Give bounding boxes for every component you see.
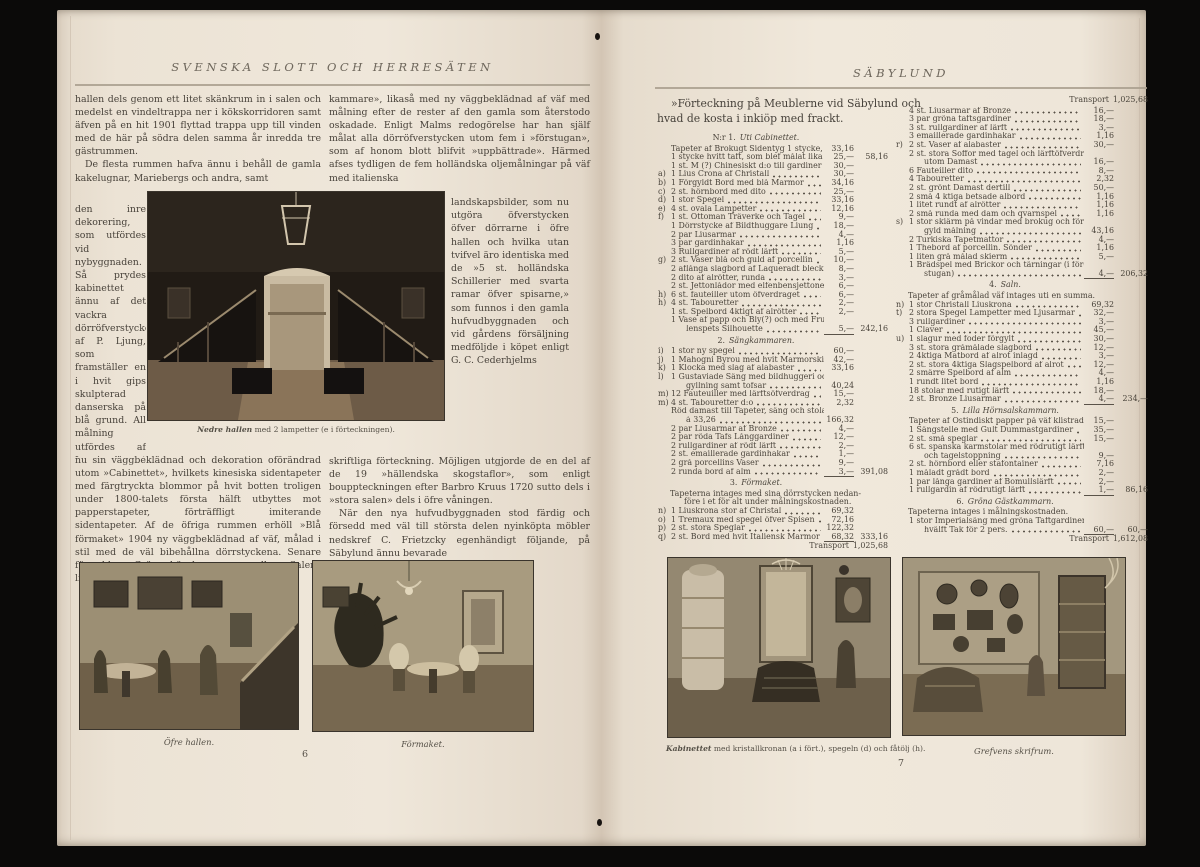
photo-formaket — [313, 561, 533, 731]
inventory-section-header: 3. Förmaket. — [658, 479, 888, 488]
inventory-row: 2 små runda med dam och qvarnspel1,16 — [896, 210, 1148, 219]
inventory-row: 2 runda bord af alm3,—391,08 — [658, 468, 888, 477]
paragraph: skriftliga förteckning. Möjligen utgjord… — [329, 455, 590, 507]
binding-stitch-bottom — [597, 819, 602, 826]
inventory-row: 2 st. Bronze Liusarmar4,—234,— — [896, 395, 1148, 404]
inventory-row: 1 st. Spelbord 4ktigt af alrötter2,— — [658, 308, 888, 317]
inventory-row: m)4 st. Tabouretter d:o2,32 — [658, 399, 888, 408]
running-head-right: SÄBYLUND — [655, 66, 1147, 80]
header-rule-right — [655, 87, 1147, 89]
inventory-section-header: 5. Lilla Hörnsalskammarn. — [896, 407, 1148, 416]
inventory-row: lenspets Silhouette5,—242,16 — [658, 325, 888, 334]
inventory-row: 2 st. små speglar15,— — [896, 435, 1148, 444]
inventory-row: hvälft Tak för 2 pers.60,—60,— — [896, 526, 1148, 535]
photo-nedre-hallen-caption: Nedre hallen med 2 lampetter (e i förtec… — [148, 425, 444, 434]
inventory-section-header: 2. Sängkammaren. — [658, 337, 888, 346]
inventory-column-2: Transport 1,025,684 st. Liusarmar af Bro… — [896, 95, 1148, 546]
left-col1-strip: den inre dekorering, som utfördes vid ny… — [75, 203, 146, 457]
inventory-row: r)2 st. Vaser af alabaster30,— — [896, 141, 1148, 150]
transport-line: Transport 1,025,68 — [658, 542, 888, 551]
page-number-right: 7 — [655, 758, 1147, 769]
photo-ofre-hallen — [80, 563, 298, 729]
transport-line: Transport 1,025,68 — [896, 96, 1148, 105]
paragraph: De flesta rummen hafva ännu i behåll de … — [75, 158, 321, 184]
inventory-row: 1 rullgardin af rödrutigt lärft1,—86,16 — [896, 486, 1148, 495]
photo-kabinettet-art — [668, 558, 890, 737]
photo-nedre-hallen — [148, 192, 444, 420]
left-col1-bottom: nu sin väggbeklädnad och dekoration oför… — [75, 454, 321, 560]
photo-ofre-hallen-caption: Öfre hallen. — [80, 737, 298, 747]
paragraph: den inre dekorering, som utfördes vid ny… — [75, 203, 146, 457]
inventory-section-header: 6. Gröna Gästkammarn. — [896, 498, 1148, 507]
photo-nedre-hallen-art — [148, 192, 444, 420]
transport-line: Transport 1,612,08 — [896, 535, 1148, 544]
photo-grefvens-skrifrum-caption: Grefvens skrifrum. — [903, 746, 1125, 756]
inventory-column-1: N:r 1. Uti Cabinettet.Tapeter af Brokugt… — [658, 131, 888, 553]
photo-grefvens-skrifrum-art — [903, 558, 1125, 735]
photo-ofre-hallen-art — [80, 563, 298, 729]
paragraph: När den nya hufvudbyggnaden stod färdig … — [329, 507, 590, 559]
inventory-row: stugan)4,—206,32 — [896, 270, 1148, 279]
photo-kabinettet — [668, 558, 890, 737]
caption-lead: Kabinettet — [666, 744, 711, 753]
photo-grefvens-skrifrum — [903, 558, 1125, 735]
caption-rest: med kristallkronan (a i fört.), spegeln … — [711, 744, 925, 753]
paragraph: landskapsbilder, som nu utgöra öfverstyc… — [451, 196, 569, 368]
caption-lead: Nedre hallen — [197, 425, 252, 434]
photo-formaket-art — [313, 561, 533, 731]
binding-stitch-top — [595, 33, 600, 40]
paragraph: kammare», likaså med ny väggbeklädnad af… — [329, 93, 590, 185]
photo-formaket-caption: Förmaket. — [313, 739, 533, 749]
inventory-row: 1 liten grå målad skierm5,— — [896, 253, 1148, 262]
running-head-left: SVENSKA SLOTT OCH HERRESÄTEN — [75, 60, 590, 74]
page-number-left: 6 — [75, 749, 535, 760]
page-edge-left — [70, 16, 71, 840]
left-col1-top: hallen dels genom ett litet skänkrum in … — [75, 93, 321, 203]
caption-rest: med 2 lampetter (e i förteckningen). — [252, 425, 395, 434]
header-rule-left — [75, 84, 590, 86]
inventory-row: k)1 Klocka med slag af alabaster33,16 — [658, 364, 888, 373]
inventory-section-header: 4. Saln. — [896, 281, 1148, 290]
left-col2-strip: landskapsbilder, som nu utgöra öfverstyc… — [451, 196, 569, 452]
inventory-section-header: N:r 1. Uti Cabinettet. — [658, 134, 888, 143]
paragraph: hallen dels genom ett litet skänkrum in … — [75, 93, 321, 158]
inventory-note: Tapeterna intages i målningskostnaden. — [896, 508, 1148, 517]
left-col2-top: kammare», likaså med ny väggbeklädnad af… — [329, 93, 590, 203]
left-col2-bottom: skriftliga förteckning. Möjligen utgjord… — [329, 455, 590, 567]
book-scan: SVENSKA SLOTT OCH HERRESÄTEN hallen dels… — [0, 0, 1200, 867]
inventory-row: q)2 st. Bord med hvit Italiensk Marmor68… — [658, 533, 888, 542]
